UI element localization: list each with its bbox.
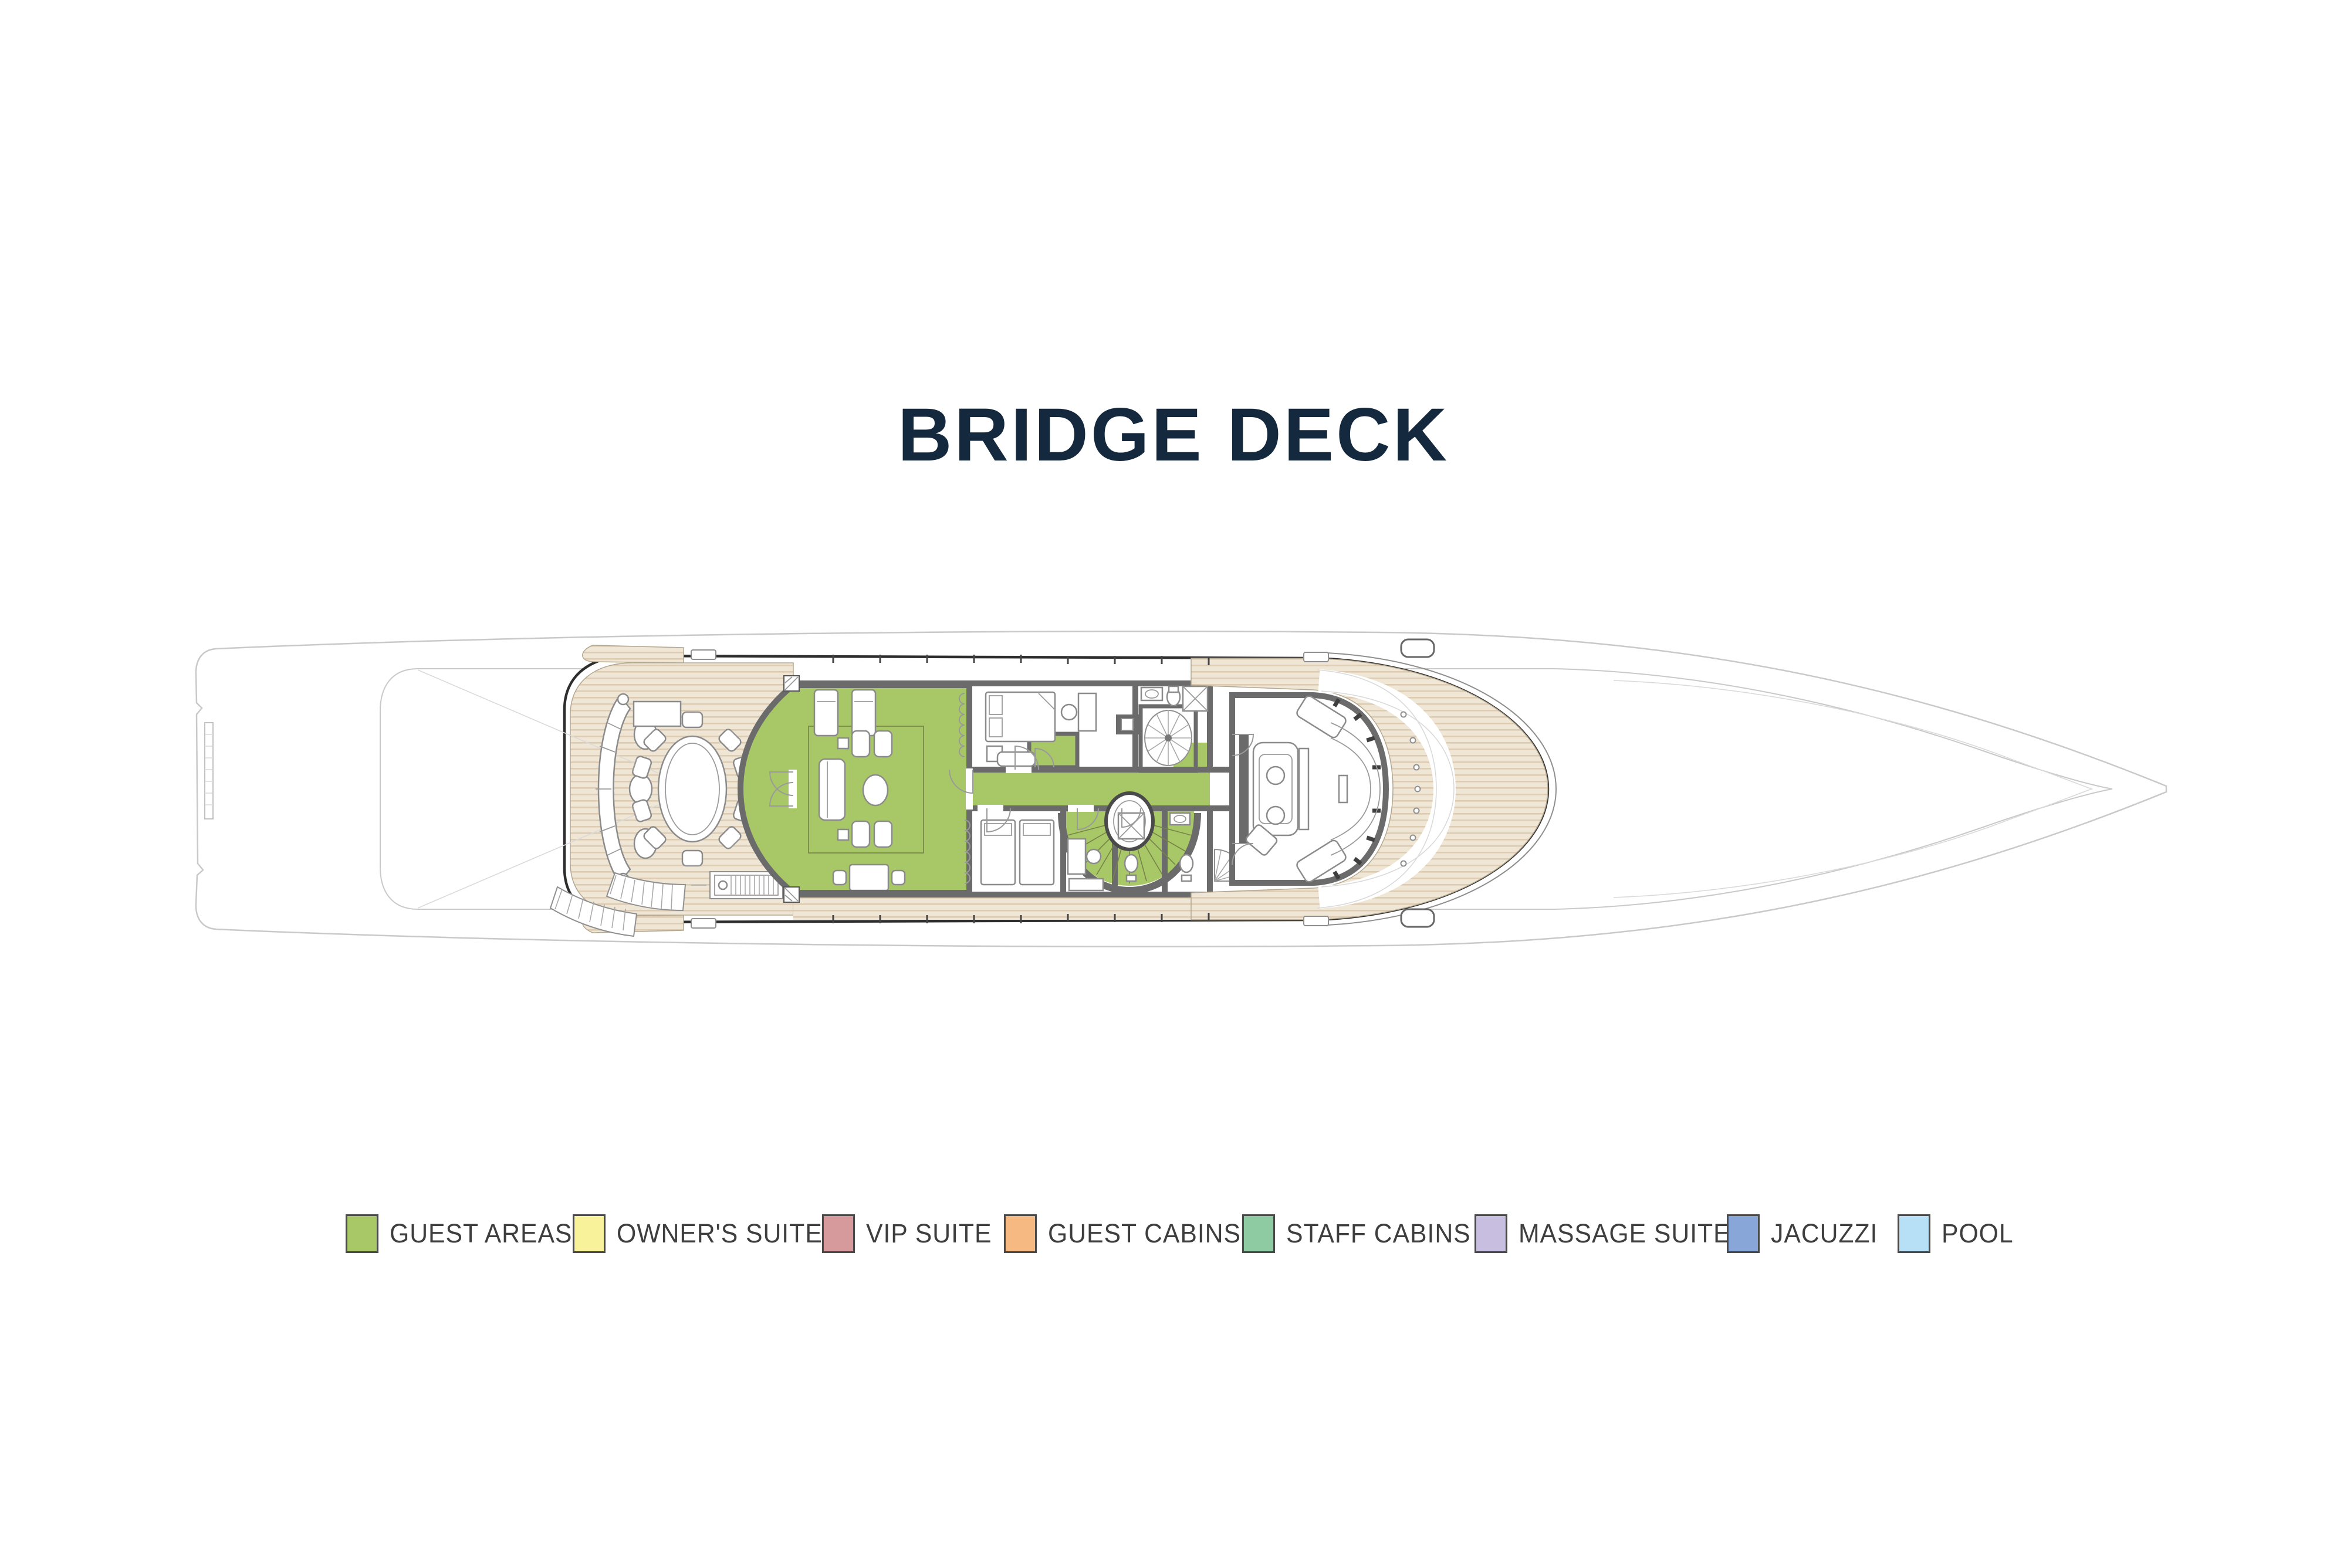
legend-item-guest-areas: GUEST AREAS bbox=[346, 1214, 582, 1253]
legend-swatch-owners-suite bbox=[573, 1214, 606, 1253]
legend-swatch-massage-suite bbox=[1475, 1214, 1507, 1253]
legend-item-vip-suite: VIP SUITE bbox=[822, 1214, 999, 1253]
legend-swatch-guest-cabins bbox=[1004, 1214, 1037, 1253]
legend-label-massage-suite: MASSAGE SUITE bbox=[1519, 1218, 1731, 1249]
legend-swatch-pool bbox=[1898, 1214, 1930, 1253]
legend-item-pool: POOL bbox=[1898, 1214, 2017, 1253]
legend-label-guest-areas: GUEST AREAS bbox=[390, 1218, 572, 1249]
legend-label-staff-cabins: STAFF CABINS bbox=[1286, 1218, 1471, 1249]
legend-item-staff-cabins: STAFF CABINS bbox=[1242, 1214, 1480, 1253]
legend-item-guest-cabins: GUEST CABINS bbox=[1004, 1214, 1251, 1253]
legend-item-owners-suite: OWNER'S SUITE bbox=[573, 1214, 833, 1253]
legend-label-jacuzzi: JACUZZI bbox=[1771, 1218, 1878, 1249]
legend-label-guest-cabins: GUEST CABINS bbox=[1048, 1218, 1241, 1249]
legend: GUEST AREAS OWNER'S SUITE VIP SUITE GUES… bbox=[0, 0, 2347, 1565]
legend-item-massage-suite: MASSAGE SUITE bbox=[1475, 1214, 1742, 1253]
legend-swatch-jacuzzi bbox=[1727, 1214, 1760, 1253]
legend-item-jacuzzi: JACUZZI bbox=[1727, 1214, 1883, 1253]
legend-swatch-guest-areas bbox=[346, 1214, 378, 1253]
legend-label-pool: POOL bbox=[1942, 1218, 2014, 1249]
legend-swatch-staff-cabins bbox=[1242, 1214, 1275, 1253]
legend-swatch-vip-suite bbox=[822, 1214, 855, 1253]
legend-label-owners-suite: OWNER'S SUITE bbox=[617, 1218, 823, 1249]
legend-label-vip-suite: VIP SUITE bbox=[866, 1218, 992, 1249]
